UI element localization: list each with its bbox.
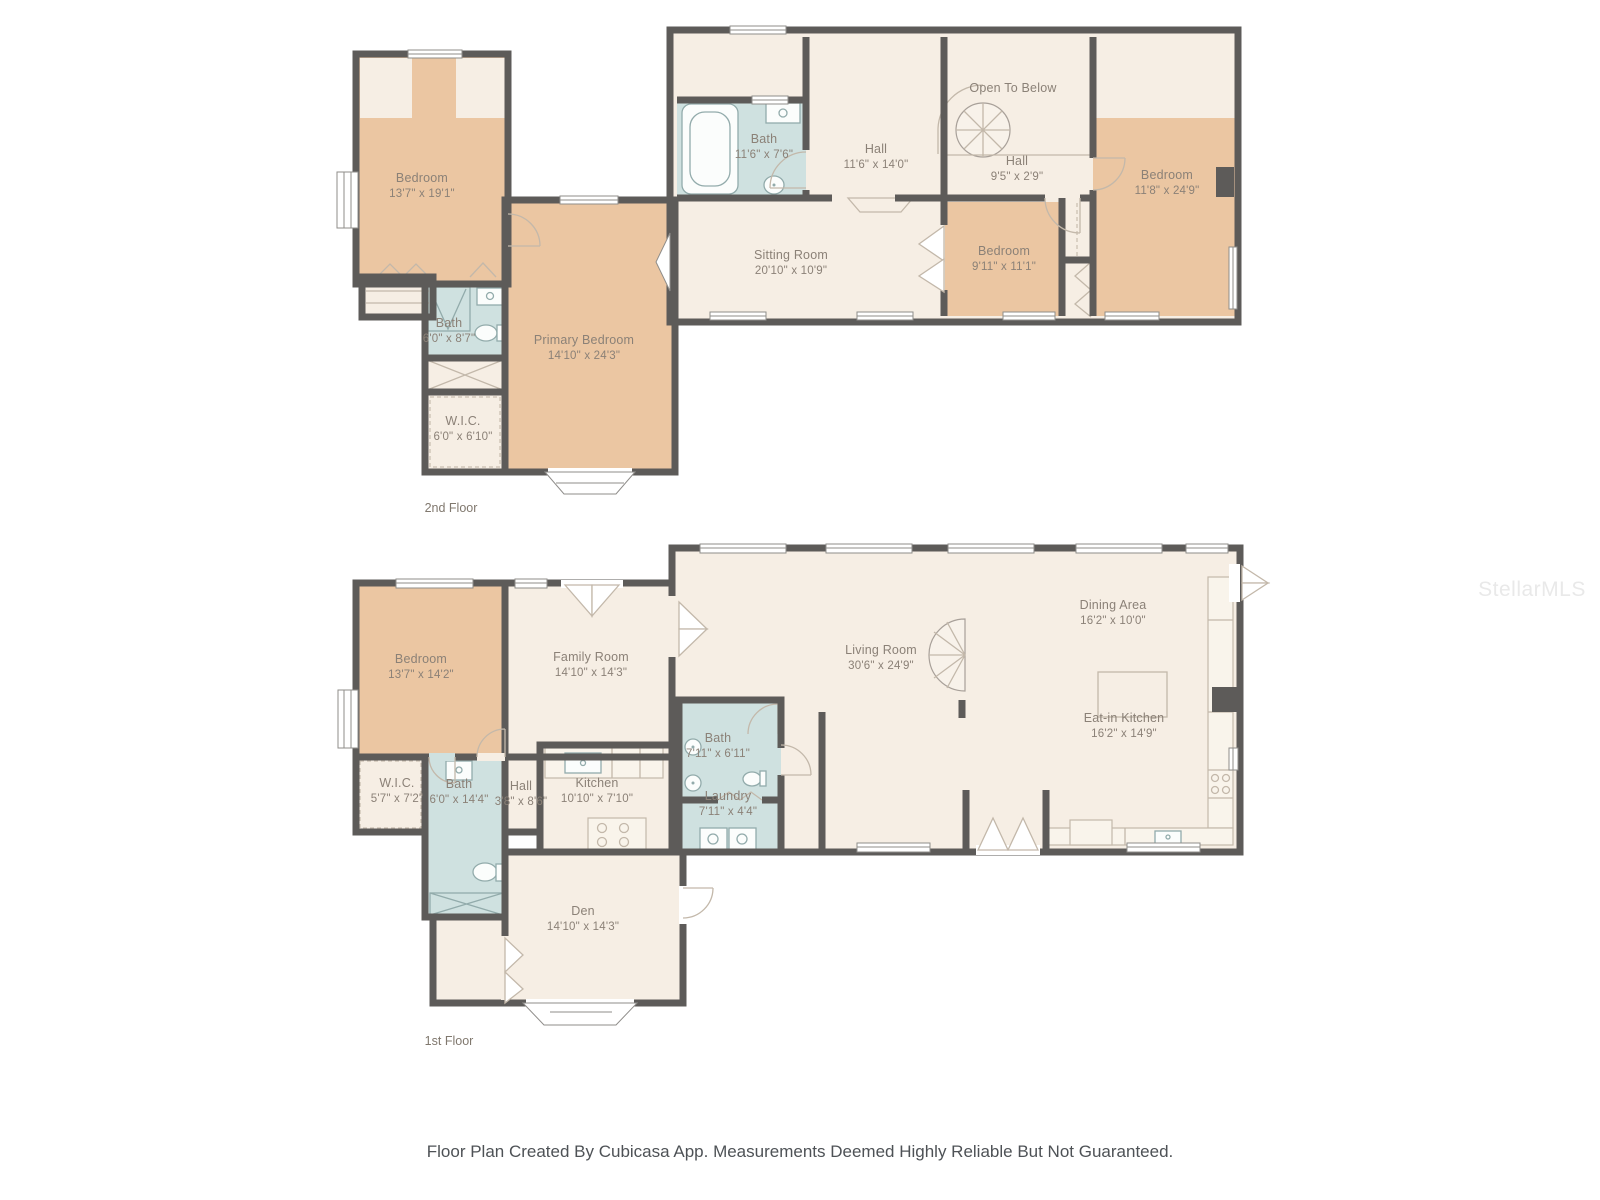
floor-plan-page: Bedroom 13'7" x 19'1" Bath 6'0" x 8'7" W…: [0, 0, 1600, 1200]
room-label-1f-den: Den 14'10" x 14'3": [547, 903, 619, 935]
room-dims: 11'8" x 24'9": [1135, 184, 1200, 199]
room-label-1f-hall: Hall 3'8" x 8'6": [495, 778, 547, 810]
floor-label-1st: 1st Floor: [425, 1034, 474, 1048]
room-label-1f-dining-area: Dining Area 16'2" x 10'0": [1080, 597, 1147, 629]
room-dims: 10'10" x 7'10": [561, 792, 633, 807]
room-label-1f-bedroom: Bedroom 13'7" x 14'2": [388, 651, 454, 683]
room-label-2f-hall-small: Hall 9'5" x 2'9": [991, 153, 1043, 185]
room-label-2f-bedroom: Bedroom 13'7" x 19'1": [389, 170, 455, 202]
room-name: Sitting Room: [754, 247, 828, 264]
room-label-1f-living-room: Living Room 30'6" x 24'9": [845, 642, 917, 674]
room-dims: 9'5" x 2'9": [991, 170, 1043, 185]
room-name: Laundry: [699, 788, 757, 805]
room-dims: 11'6" x 7'6": [735, 148, 793, 163]
toilet-icon: [743, 771, 766, 786]
room-name: Dining Area: [1080, 597, 1147, 614]
room-label-1f-kitchen: Kitchen 10'10" x 7'10": [561, 775, 633, 807]
fireplace-block: [1216, 167, 1234, 197]
room-dims: 6'0" x 14'4": [429, 793, 488, 808]
toilet-icon: [473, 863, 503, 881]
footer-disclaimer: Floor Plan Created By Cubicasa App. Meas…: [0, 1142, 1600, 1162]
room-name: Hall: [495, 778, 547, 795]
room-label-1f-bath-long: Bath 6'0" x 14'4": [429, 776, 488, 808]
room-dims: 16'2" x 14'9": [1084, 727, 1165, 742]
room-name: Hall: [991, 153, 1043, 170]
room-dims: 14'10" x 14'3": [553, 666, 629, 681]
room-name: Bath: [429, 776, 488, 793]
stellar-mls-watermark: StellarMLS: [1478, 578, 1586, 602]
room-name: Bedroom: [972, 243, 1036, 260]
room-label-2f-hall: Hall 11'6" x 14'0": [844, 141, 909, 173]
room-label-2f-primary-bedroom: Primary Bedroom 14'10" x 24'3": [534, 332, 634, 364]
room-name: Primary Bedroom: [534, 332, 634, 349]
floor-label-2nd: 2nd Floor: [425, 501, 478, 515]
room-dims: 3'8" x 8'6": [495, 795, 547, 810]
room-dims: 7'11" x 6'11": [686, 747, 750, 762]
room-label-2f-sitting-room: Sitting Room 20'10" x 10'9": [754, 247, 828, 279]
room-label-2f-bath-small: Bath 6'0" x 8'7": [423, 315, 475, 347]
room-name: Kitchen: [561, 775, 633, 792]
room-label-1f-laundry: Laundry 7'11" x 4'4": [699, 788, 757, 820]
fireplace-block: [1212, 687, 1237, 712]
room-name: Bedroom: [1135, 167, 1200, 184]
room-name: Bedroom: [389, 170, 455, 187]
room-name: Bath: [735, 131, 793, 148]
stove-icon: [588, 818, 646, 850]
room-dims: 14'10" x 14'3": [547, 920, 619, 935]
room-name: Open To Below: [969, 80, 1056, 97]
bay-window: [523, 1003, 637, 1025]
room-label-1f-family-room: Family Room 14'10" x 14'3": [553, 649, 629, 681]
room-label-1f-eat-in-kitchen: Eat-in Kitchen 16'2" x 14'9": [1084, 710, 1165, 742]
room-name: Bath: [686, 730, 750, 747]
room-name: W.I.C.: [371, 775, 423, 792]
room-dims: 6'0" x 6'10": [433, 430, 492, 445]
room-name: Living Room: [845, 642, 917, 659]
room-dims: 30'6" x 24'9": [845, 659, 917, 674]
room-name: Eat-in Kitchen: [1084, 710, 1165, 727]
toilet-icon: [764, 176, 784, 194]
room-dims: 13'7" x 14'2": [388, 668, 454, 683]
room-name: W.I.C.: [433, 413, 492, 430]
room-label-1f-wic: W.I.C. 5'7" x 7'2": [371, 775, 423, 807]
room-dims: 7'11" x 4'4": [699, 805, 757, 820]
room-label-2f-bedroom-large: Bedroom 11'8" x 24'9": [1135, 167, 1200, 199]
room-label-2f-bedroom-small: Bedroom 9'11" x 11'1": [972, 243, 1036, 275]
room-name: Bedroom: [388, 651, 454, 668]
room-dims: 13'7" x 19'1": [389, 187, 455, 202]
room-label-1f-bath: Bath 7'11" x 6'11": [686, 730, 750, 762]
room-dims: 20'10" x 10'9": [754, 264, 828, 279]
toilet-icon: [475, 325, 504, 341]
room-dims: 14'10" x 24'3": [534, 349, 634, 364]
floor-plan-canvas: [0, 0, 1600, 1200]
room-name: Family Room: [553, 649, 629, 666]
room-dims: 16'2" x 10'0": [1080, 614, 1147, 629]
room-dims: 9'11" x 11'1": [972, 260, 1036, 275]
room-dims: 6'0" x 8'7": [423, 332, 475, 347]
room-name: Den: [547, 903, 619, 920]
bathtub-icon: [682, 104, 738, 194]
room-name: Hall: [844, 141, 909, 158]
sink-icon: [766, 103, 800, 123]
room-label-2f-wic: W.I.C. 6'0" x 6'10": [433, 413, 492, 445]
room-label-2f-open-to-below: Open To Below: [969, 80, 1056, 97]
room-dims: 5'7" x 7'2": [371, 792, 423, 807]
kitchen-counter: [545, 748, 663, 778]
room-name: Bath: [423, 315, 475, 332]
sink-icon: [477, 288, 503, 305]
room-label-2f-bath: Bath 11'6" x 7'6": [735, 131, 793, 163]
room-dims: 11'6" x 14'0": [844, 158, 909, 173]
bay-window: [545, 472, 635, 494]
